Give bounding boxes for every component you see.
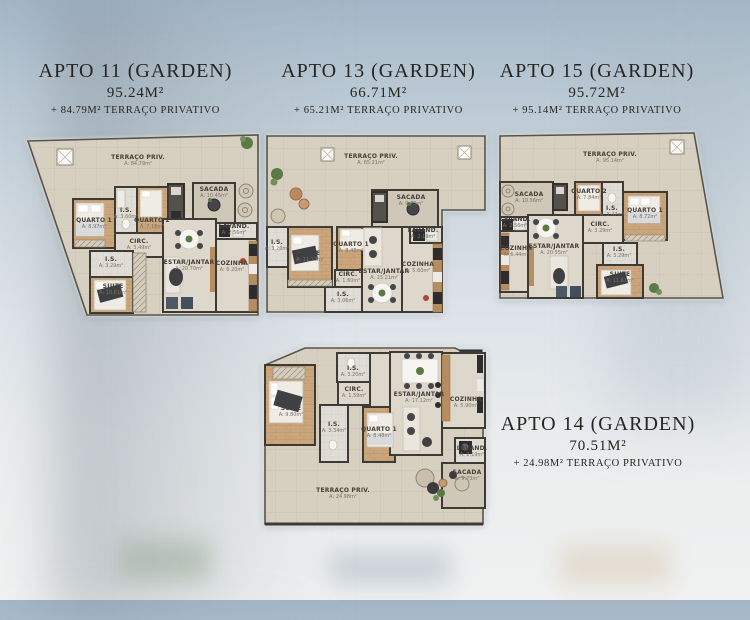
toilet-icon [273,241,281,251]
dining-table-icon [402,353,438,389]
skylight-icon [458,146,471,159]
apartment-area: 95.24M² [28,84,243,102]
bed-icon [76,203,104,236]
background-bottom-green-blur [120,540,210,580]
skylight-icon [670,140,684,154]
sofa-icon [165,257,183,293]
floorplan-sheet: { "sheet": { "language": "pt-BR", "color… [0,0,750,600]
bed-icon [340,229,364,250]
is2-room [325,287,362,312]
background-bottom-blue-blur [330,550,450,585]
toilet-icon [608,193,616,203]
floorplan-apto-13: TERRAÇO PRIV. A: 65.21m² SACADA A: 9.73m… [263,128,491,333]
is2-room [90,251,133,277]
closet-strip [75,240,105,247]
floorplan-apto-15: TERRAÇO PRIV. A: 95.14m² SACADA A: 10.56… [492,128,740,333]
closet-strip [273,367,305,379]
closet-strip [625,235,665,241]
toilet-icon [122,219,130,229]
bed-icon [269,381,303,423]
closet-strip [133,253,146,312]
circ-room [338,382,370,405]
bed-icon [578,185,600,211]
apartment-terrace-area: + 95.14M² TERRAÇO PRIVATIVO [489,104,705,117]
kitchen-counter-icon [501,233,509,290]
apartment-area: 95.72M² [489,84,705,102]
shower-icon [117,190,125,208]
apartment-name: APTO 15 (GARDEN) [489,60,705,82]
is2-room [603,243,637,265]
kitchen-counter-icon [433,244,442,312]
stove-accent-icon [423,295,429,301]
circ-room [335,270,362,287]
tv-cabinet-icon [210,247,215,292]
bed-icon [94,280,126,310]
sofa-icon [364,228,382,266]
is1-room [337,353,370,382]
skylight-icon [321,148,334,161]
closet-strip [288,280,332,286]
circ-room [583,215,623,243]
dining-table-icon [533,218,559,239]
service-shaft [372,192,387,222]
toilet-icon [329,440,337,450]
floorplan-drawing-apto-15 [492,128,740,333]
bed-icon [628,196,660,223]
bed-icon [367,413,393,447]
apartment-title-block-apto-15: APTO 15 (GARDEN) 95.72M² + 95.14M² TERRA… [489,60,705,117]
is2-room [320,405,348,462]
sofa-icon [550,256,568,289]
armchair-icon [570,286,581,297]
background-bottom-tan-blur [560,545,670,585]
tv-cabinet-icon [529,246,534,286]
apartment-title-block-apto-11: APTO 11 (GARDEN) 95.24M² + 84.79M² TERRA… [28,60,243,117]
apartment-area: 70.51M² [492,437,704,455]
kitchen-counter-icon [249,241,257,311]
armchair-icon [181,297,193,309]
bed-icon [291,235,319,271]
service-shaft [553,184,567,210]
bed-icon [601,270,631,295]
apartment-title-block-apto-14: APTO 14 (GARDEN) 70.51M² + 24.98M² TERRA… [492,413,704,470]
apartment-name: APTO 11 (GARDEN) [28,60,243,82]
dining-table-icon [175,229,203,249]
skylight-icon [57,149,73,165]
floorplan-apto-11: TERRAÇO PRIV. A: 84.79m² SACADA A: 10.45… [13,127,265,332]
floorplan-drawing-apto-13 [263,128,491,333]
apartment-terrace-area: + 65.21M² TERRAÇO PRIVATIVO [271,104,486,117]
bed-icon [140,190,162,217]
dining-table-icon [368,283,396,303]
floorplan-apto-14: SUITE A: 9.80m² I.S. A: 3.20m² CIRC. A: … [255,345,500,537]
stove-accent-icon [240,258,246,264]
floorplan-drawing-apto-14 [255,345,500,537]
apartment-title-block-apto-13: APTO 13 (GARDEN) 66.71M² + 65.21M² TERRA… [271,60,486,117]
washer-icon [459,441,472,454]
apartment-name: APTO 14 (GARDEN) [492,413,704,435]
apartment-terrace-area: + 24.98M² TERRAÇO PRIVATIVO [492,457,704,470]
apartment-terrace-area: + 84.79M² TERRAÇO PRIVATIVO [28,104,243,117]
apartment-area: 66.71M² [271,84,486,102]
apartment-name: APTO 13 (GARDEN) [271,60,486,82]
toilet-icon [347,358,355,368]
armchair-icon [556,286,567,297]
floorplan-drawing-apto-11 [13,127,265,332]
hall-room [370,353,390,407]
armchair-icon [166,297,178,309]
